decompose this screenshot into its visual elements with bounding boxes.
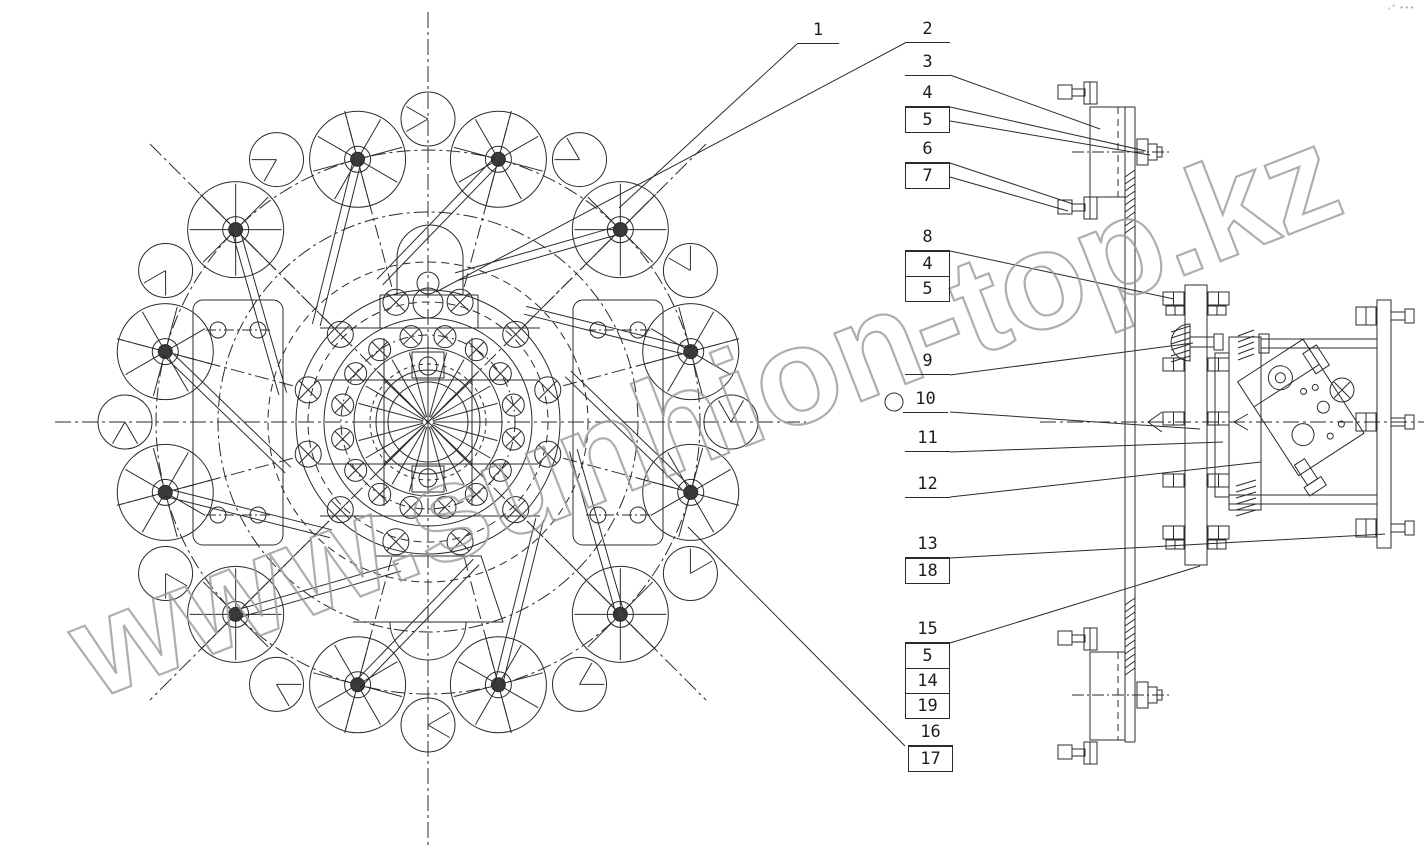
callout-12-label: 12 xyxy=(905,472,950,498)
callout-2-label: 2 xyxy=(905,17,950,43)
callout-13-label: 13 xyxy=(905,532,950,558)
callout-9-label: 9 xyxy=(905,349,950,375)
callout-19-label: 19 xyxy=(905,693,950,719)
callout-14-label: 14 xyxy=(905,668,950,694)
tie-rod-top xyxy=(1261,339,1377,348)
callout-15-label: 15 xyxy=(905,617,950,643)
callout-17-label: 17 xyxy=(908,746,953,772)
callout-3-label: 3 xyxy=(905,50,950,76)
assembly-drawing: www.sunhion-top.kz xyxy=(0,0,1428,857)
callout-11-label: 11 xyxy=(905,426,950,452)
valve-block xyxy=(1238,335,1371,496)
callout-1-label: 1 xyxy=(797,18,839,44)
callout-5b-label: 5 xyxy=(905,276,950,302)
corner-marks: ₒ° ••• xyxy=(1388,4,1415,12)
bottom-bracket xyxy=(1058,628,1172,764)
callout-10-label: 10 xyxy=(903,387,948,413)
callout-6-label: 6 xyxy=(905,137,950,163)
callout-7-label: 7 xyxy=(905,163,950,189)
drawing-sheet: www.sunhion-top.kz 1 2 3 4 5 6 7 8 4 5 9… xyxy=(0,0,1428,857)
callout-4-label: 4 xyxy=(905,81,950,107)
hub-cylinder xyxy=(1229,337,1261,510)
callout-18-label: 18 xyxy=(905,558,950,584)
callout-8-label: 8 xyxy=(905,225,950,251)
callout-5-label: 5 xyxy=(905,107,950,133)
callout-5c-label: 5 xyxy=(905,643,950,669)
top-dome xyxy=(320,225,540,328)
callout-4b-label: 4 xyxy=(905,251,950,277)
callout-16-label: 16 xyxy=(908,720,953,746)
right-plate xyxy=(1377,300,1391,548)
